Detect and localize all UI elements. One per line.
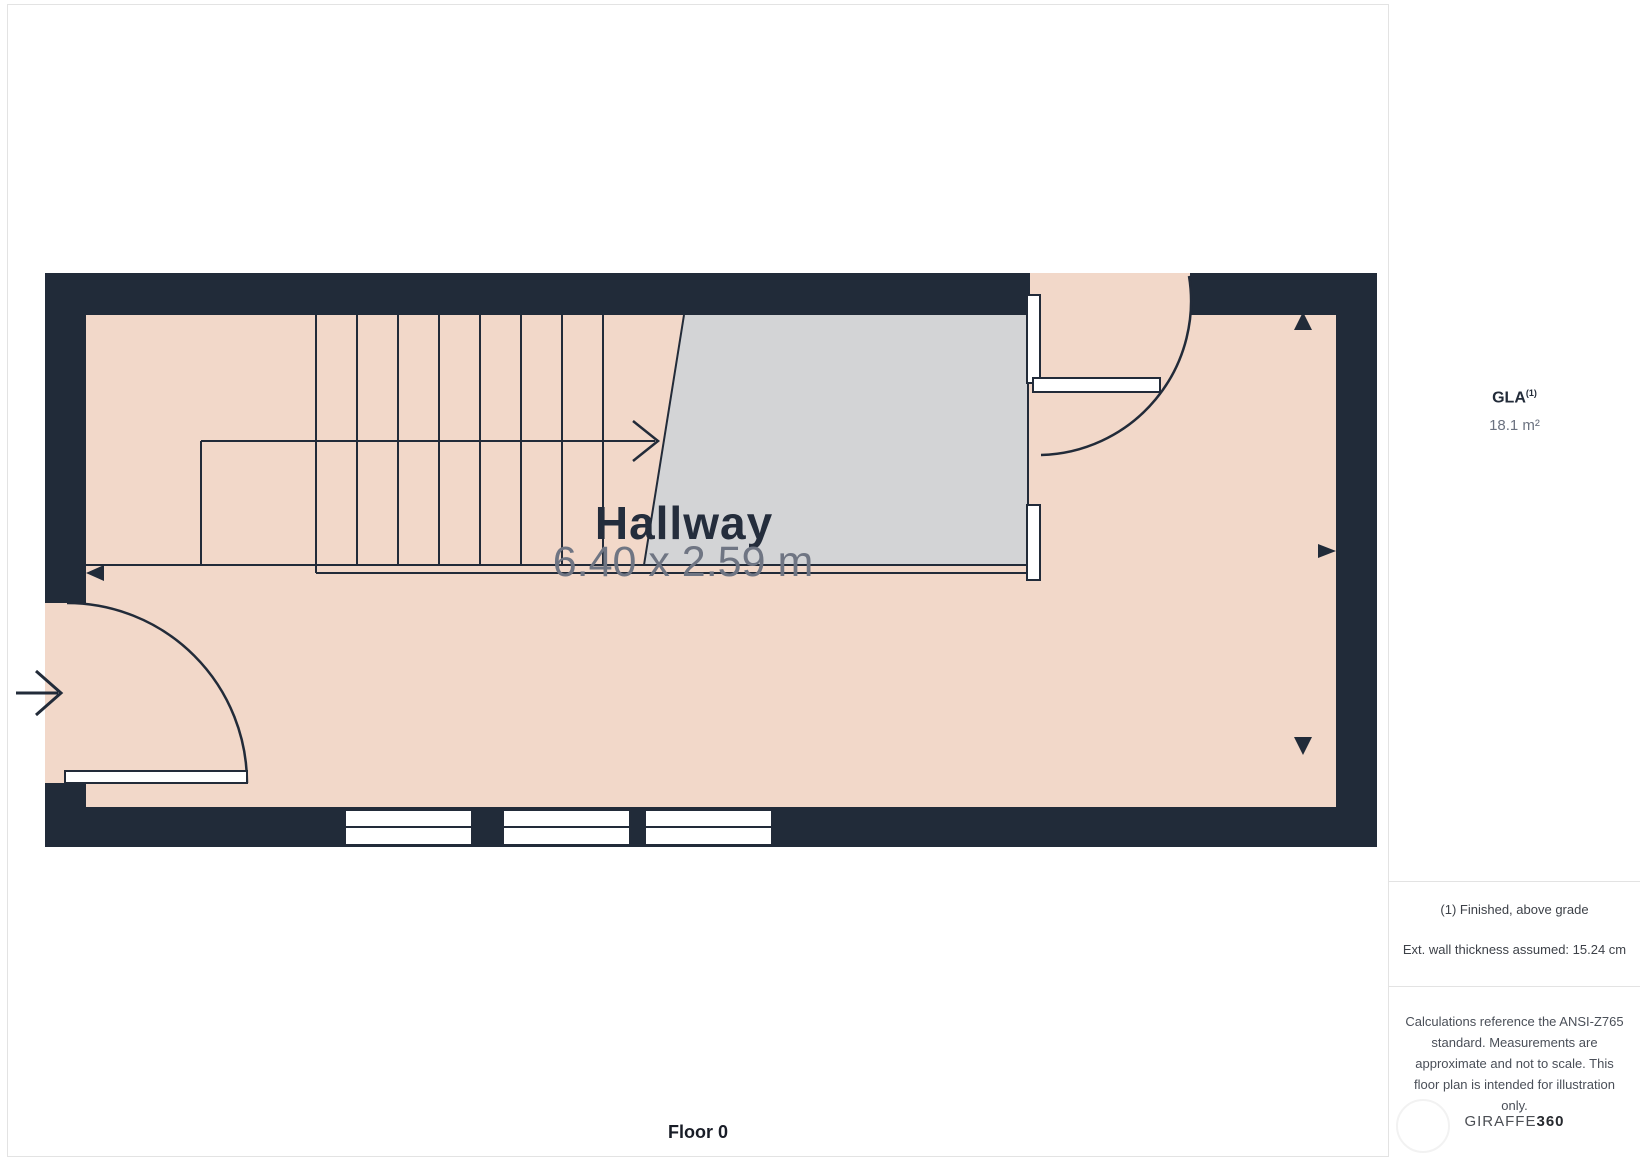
window [503,810,630,845]
windows [345,810,772,845]
gla-value: 18.1 m² [1389,417,1640,434]
note-wall-thickness: Ext. wall thickness assumed: 15.24 cm [1389,942,1640,957]
gla-footnote-marker: (1) [1526,388,1537,398]
wall-top-left [45,273,1030,315]
window [345,810,472,845]
gla-label-text: GLA [1492,389,1526,406]
disclaimer-line: approximate and not to scale. This [1389,1053,1640,1074]
door-jamb-upper [1027,295,1040,383]
entry-door-leaf [65,771,247,783]
window [645,810,772,845]
door-jamb-lower [1027,505,1040,580]
floorplan-canvas: Hallway 6.40 x 2.59 m Floor 0 GLA(1) 18.… [0,0,1647,1165]
disclaimer-box: Calculations reference the ANSI-Z765 sta… [1389,987,1640,1157]
disclaimer-line: standard. Measurements are [1389,1032,1640,1053]
giraffe360-logo: GIRAFFE360 [1389,1111,1640,1132]
notes-box: (1) Finished, above grade Ext. wall thic… [1389,882,1640,987]
brand-name-prefix: GIRAFFE [1464,1113,1536,1130]
brand-name-suffix: 360 [1536,1113,1564,1130]
disclaimer-line: Calculations reference the ANSI-Z765 [1389,1011,1640,1032]
gla-label: GLA(1) [1389,388,1640,407]
room-dimensions-label: 6.40 x 2.59 m [443,538,923,587]
sidebar: GLA(1) 18.1 m² (1) Finished, above grade… [1388,4,1640,1157]
floor-label: Floor 0 [0,1122,1396,1143]
wall-left-upper [45,315,86,603]
gla-summary-box: GLA(1) 18.1 m² [1389,4,1640,882]
disclaimer-line: floor plan is intended for illustration [1389,1074,1640,1095]
note-finished-grade: (1) Finished, above grade [1389,902,1640,917]
interior-door-leaf [1033,378,1160,392]
wall-right [1336,273,1377,847]
